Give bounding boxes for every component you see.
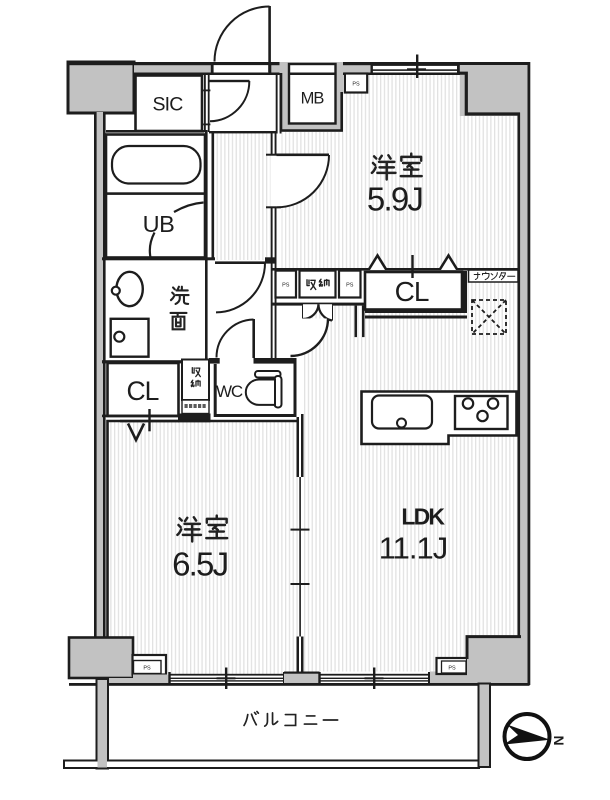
svg-text:MB: MB — [301, 90, 325, 108]
svg-text:N: N — [551, 735, 567, 745]
svg-text:UB: UB — [143, 211, 175, 237]
svg-text:PS: PS — [346, 283, 354, 289]
svg-text:11.1J: 11.1J — [379, 531, 448, 566]
svg-text:PS: PS — [282, 283, 290, 289]
svg-text:6.5J: 6.5J — [172, 546, 227, 583]
svg-text:PS: PS — [352, 82, 360, 88]
svg-text:WC: WC — [216, 382, 243, 401]
svg-text:CL: CL — [127, 376, 159, 406]
svg-text:CL: CL — [395, 276, 429, 307]
svg-text:LDK: LDK — [401, 504, 445, 530]
svg-text:SIC: SIC — [152, 94, 183, 116]
svg-text:5.9J: 5.9J — [367, 181, 422, 218]
svg-text:PS: PS — [448, 666, 456, 672]
svg-text:PS: PS — [143, 666, 151, 672]
